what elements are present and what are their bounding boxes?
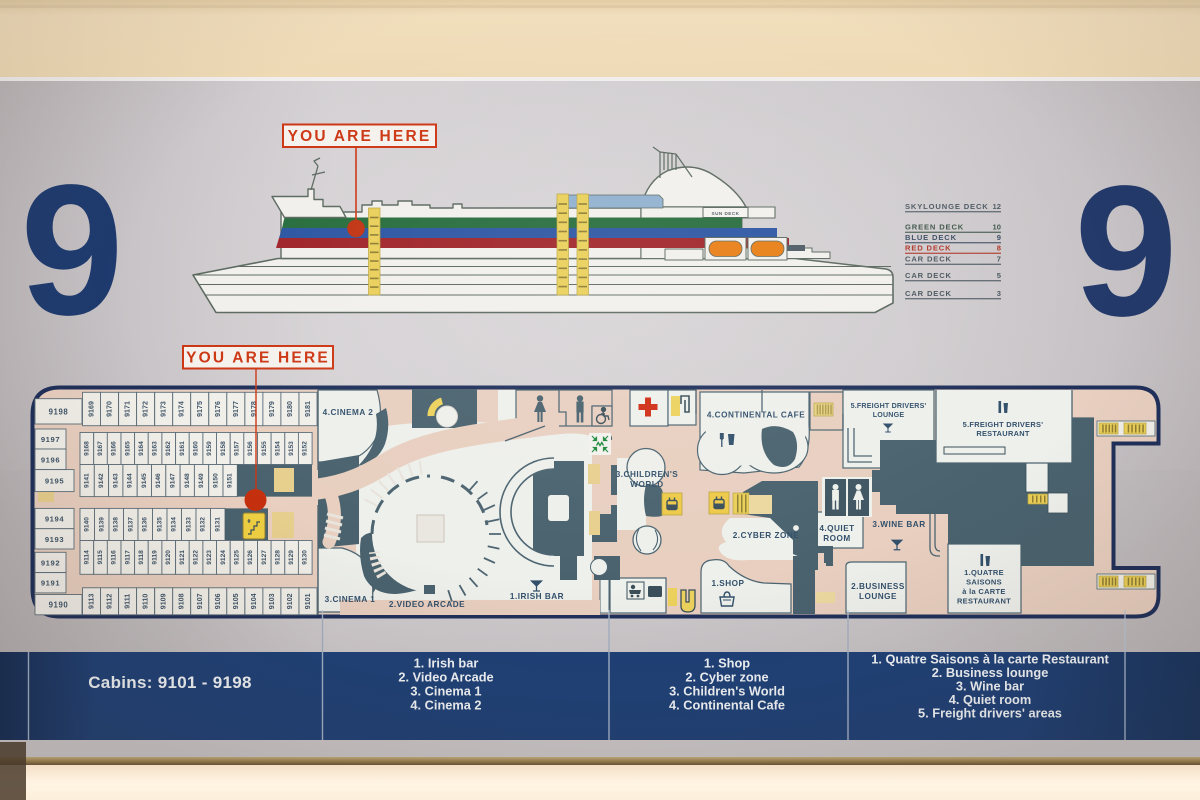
svg-text:9196: 9196 xyxy=(41,455,60,464)
svg-text:9152: 9152 xyxy=(302,441,309,456)
svg-text:9106: 9106 xyxy=(214,593,222,609)
svg-text:9131: 9131 xyxy=(214,517,221,532)
svg-text:RED DECK: RED DECK xyxy=(905,244,951,253)
svg-text:9102: 9102 xyxy=(286,593,294,609)
svg-text:9130: 9130 xyxy=(302,550,309,565)
svg-text:9148: 9148 xyxy=(184,473,191,488)
svg-text:9142: 9142 xyxy=(98,473,105,488)
svg-text:SUN DECK: SUN DECK xyxy=(712,211,740,216)
svg-text:5.FREIGHT DRIVERS': 5.FREIGHT DRIVERS' xyxy=(851,402,927,410)
svg-text:9161: 9161 xyxy=(179,441,186,456)
svg-text:9177: 9177 xyxy=(232,401,240,417)
svg-text:Cabins: 9101 - 9198: Cabins: 9101 - 9198 xyxy=(88,673,252,692)
svg-text:SKYLOUNGE DECK: SKYLOUNGE DECK xyxy=(905,202,989,211)
svg-text:RESTAURANT: RESTAURANT xyxy=(976,429,1030,438)
svg-text:YOU ARE HERE: YOU ARE HERE xyxy=(186,350,330,367)
svg-text:BLUE DECK: BLUE DECK xyxy=(905,233,957,242)
svg-text:9173: 9173 xyxy=(160,401,168,417)
svg-text:2.VIDEO ARCADE: 2.VIDEO ARCADE xyxy=(389,600,465,609)
svg-text:1. Shop: 1. Shop xyxy=(704,656,750,671)
svg-text:5.FREIGHT DRIVERS': 5.FREIGHT DRIVERS' xyxy=(963,420,1044,429)
svg-text:9104: 9104 xyxy=(250,593,258,609)
svg-text:9180: 9180 xyxy=(286,401,294,417)
svg-text:9121: 9121 xyxy=(179,550,186,565)
svg-text:9190: 9190 xyxy=(49,601,69,610)
svg-text:12: 12 xyxy=(993,202,1001,211)
svg-text:9137: 9137 xyxy=(127,517,134,532)
svg-text:4.CINEMA 2: 4.CINEMA 2 xyxy=(323,408,374,417)
svg-text:9108: 9108 xyxy=(178,593,186,609)
svg-text:9135: 9135 xyxy=(156,517,163,532)
svg-text:GREEN DECK: GREEN DECK xyxy=(905,223,964,232)
svg-text:7: 7 xyxy=(997,255,1001,264)
svg-text:9140: 9140 xyxy=(84,517,91,532)
svg-text:9155: 9155 xyxy=(261,441,268,456)
svg-text:9181: 9181 xyxy=(304,401,312,417)
svg-text:9176: 9176 xyxy=(214,401,222,417)
svg-text:RESTAURANT: RESTAURANT xyxy=(957,597,1011,606)
svg-text:CAR DECK: CAR DECK xyxy=(905,255,952,264)
svg-text:9110: 9110 xyxy=(142,594,150,609)
svg-text:9136: 9136 xyxy=(142,517,149,532)
svg-text:9191: 9191 xyxy=(41,579,60,588)
svg-text:9: 9 xyxy=(1074,148,1177,355)
svg-text:YOU ARE HERE: YOU ARE HERE xyxy=(288,128,432,145)
svg-text:9198: 9198 xyxy=(49,407,69,416)
svg-text:9124: 9124 xyxy=(220,550,227,565)
svg-text:9169: 9169 xyxy=(88,401,96,417)
svg-text:9125: 9125 xyxy=(234,550,241,565)
svg-text:9116: 9116 xyxy=(111,550,118,565)
svg-text:9119: 9119 xyxy=(152,550,159,565)
svg-text:9164: 9164 xyxy=(138,441,145,456)
svg-text:9194: 9194 xyxy=(45,515,64,524)
svg-text:9120: 9120 xyxy=(165,550,172,565)
svg-text:9134: 9134 xyxy=(171,517,178,532)
svg-text:9112: 9112 xyxy=(106,594,114,609)
svg-text:9170: 9170 xyxy=(106,401,114,417)
svg-text:9167: 9167 xyxy=(97,441,104,456)
svg-text:9192: 9192 xyxy=(41,558,60,567)
svg-text:ROOM: ROOM xyxy=(823,534,850,543)
svg-text:1. Irish bar: 1. Irish bar xyxy=(414,656,479,671)
svg-text:LOUNGE: LOUNGE xyxy=(859,592,897,601)
svg-text:9179: 9179 xyxy=(268,401,276,417)
svg-text:3. Children's World: 3. Children's World xyxy=(669,684,785,699)
svg-text:LOUNGE: LOUNGE xyxy=(873,411,905,419)
svg-text:9172: 9172 xyxy=(142,401,150,417)
svg-text:9114: 9114 xyxy=(83,550,90,565)
svg-text:9149: 9149 xyxy=(198,473,205,488)
svg-text:3.CINEMA 1: 3.CINEMA 1 xyxy=(325,595,376,604)
svg-text:1.SHOP: 1.SHOP xyxy=(711,579,744,588)
svg-text:9197: 9197 xyxy=(41,435,60,444)
svg-text:9175: 9175 xyxy=(196,401,204,417)
svg-text:9122: 9122 xyxy=(193,550,200,565)
svg-text:9128: 9128 xyxy=(274,550,281,565)
svg-text:9147: 9147 xyxy=(170,473,177,488)
svg-text:9118: 9118 xyxy=(138,550,145,565)
svg-text:2.BUSINESS: 2.BUSINESS xyxy=(851,582,905,591)
svg-text:2. Cyber zone: 2. Cyber zone xyxy=(685,670,768,685)
svg-text:3. Cinema 1: 3. Cinema 1 xyxy=(410,684,481,699)
svg-text:9113: 9113 xyxy=(88,594,96,609)
svg-text:9138: 9138 xyxy=(113,517,120,532)
svg-text:4.QUIET: 4.QUIET xyxy=(819,524,854,533)
svg-text:9101: 9101 xyxy=(304,593,312,609)
svg-text:9174: 9174 xyxy=(178,401,186,417)
svg-text:9: 9 xyxy=(997,233,1001,242)
svg-text:4. Continental Cafe: 4. Continental Cafe xyxy=(669,698,785,713)
svg-text:9151: 9151 xyxy=(227,473,234,488)
svg-text:9166: 9166 xyxy=(111,441,118,456)
svg-text:9111: 9111 xyxy=(124,594,132,609)
svg-text:9141: 9141 xyxy=(84,473,91,488)
svg-text:2.CYBER ZONE: 2.CYBER ZONE xyxy=(733,531,800,540)
svg-text:9158: 9158 xyxy=(220,441,227,456)
svg-text:9146: 9146 xyxy=(155,473,162,488)
svg-text:9133: 9133 xyxy=(185,517,192,532)
svg-text:9144: 9144 xyxy=(127,473,134,488)
svg-text:9168: 9168 xyxy=(83,441,90,456)
svg-text:3: 3 xyxy=(997,289,1001,298)
svg-text:CAR DECK: CAR DECK xyxy=(905,271,952,280)
svg-text:9105: 9105 xyxy=(232,593,240,609)
svg-text:9115: 9115 xyxy=(97,550,104,565)
svg-text:2. Video Arcade: 2. Video Arcade xyxy=(398,670,493,685)
svg-text:9163: 9163 xyxy=(152,441,159,456)
svg-text:9: 9 xyxy=(20,147,123,354)
svg-text:SAISONS: SAISONS xyxy=(966,578,1002,587)
svg-text:3.WINE BAR: 3.WINE BAR xyxy=(872,520,925,529)
svg-text:9150: 9150 xyxy=(212,473,219,488)
svg-text:9145: 9145 xyxy=(141,473,148,488)
svg-text:10: 10 xyxy=(993,223,1001,232)
svg-text:9139: 9139 xyxy=(98,517,105,532)
svg-text:3.CHILDREN'S: 3.CHILDREN'S xyxy=(616,470,679,479)
svg-text:9143: 9143 xyxy=(112,473,119,488)
svg-text:9103: 9103 xyxy=(268,593,276,609)
svg-text:9157: 9157 xyxy=(234,441,241,456)
svg-text:WORLD: WORLD xyxy=(630,480,663,489)
svg-text:9109: 9109 xyxy=(160,593,168,609)
svg-text:9126: 9126 xyxy=(247,550,254,565)
svg-text:9159: 9159 xyxy=(206,441,213,456)
svg-text:1.QUATRE: 1.QUATRE xyxy=(964,568,1004,577)
svg-text:9107: 9107 xyxy=(196,593,204,609)
svg-text:9156: 9156 xyxy=(247,441,254,456)
svg-text:5. Freight drivers' areas: 5. Freight drivers' areas xyxy=(918,706,1062,721)
svg-text:CAR DECK: CAR DECK xyxy=(905,289,952,298)
svg-text:9162: 9162 xyxy=(165,441,172,456)
svg-text:9117: 9117 xyxy=(124,550,131,565)
svg-text:9195: 9195 xyxy=(45,477,64,486)
svg-text:1.IRISH BAR: 1.IRISH BAR xyxy=(510,592,564,601)
svg-text:4. Cinema 2: 4. Cinema 2 xyxy=(410,698,481,713)
svg-text:9154: 9154 xyxy=(274,441,281,456)
svg-text:9165: 9165 xyxy=(124,441,131,456)
svg-text:8: 8 xyxy=(997,244,1001,253)
svg-text:9123: 9123 xyxy=(206,550,213,565)
svg-text:9127: 9127 xyxy=(261,550,268,565)
svg-text:à la CARTE: à la CARTE xyxy=(962,587,1005,596)
svg-text:4.CONTINENTAL CAFE: 4.CONTINENTAL CAFE xyxy=(707,411,805,420)
svg-text:9193: 9193 xyxy=(45,535,64,544)
svg-text:9129: 9129 xyxy=(288,550,295,565)
svg-text:9132: 9132 xyxy=(200,517,207,532)
svg-text:9153: 9153 xyxy=(288,441,295,456)
svg-text:9160: 9160 xyxy=(193,441,200,456)
svg-text:9171: 9171 xyxy=(124,401,132,417)
